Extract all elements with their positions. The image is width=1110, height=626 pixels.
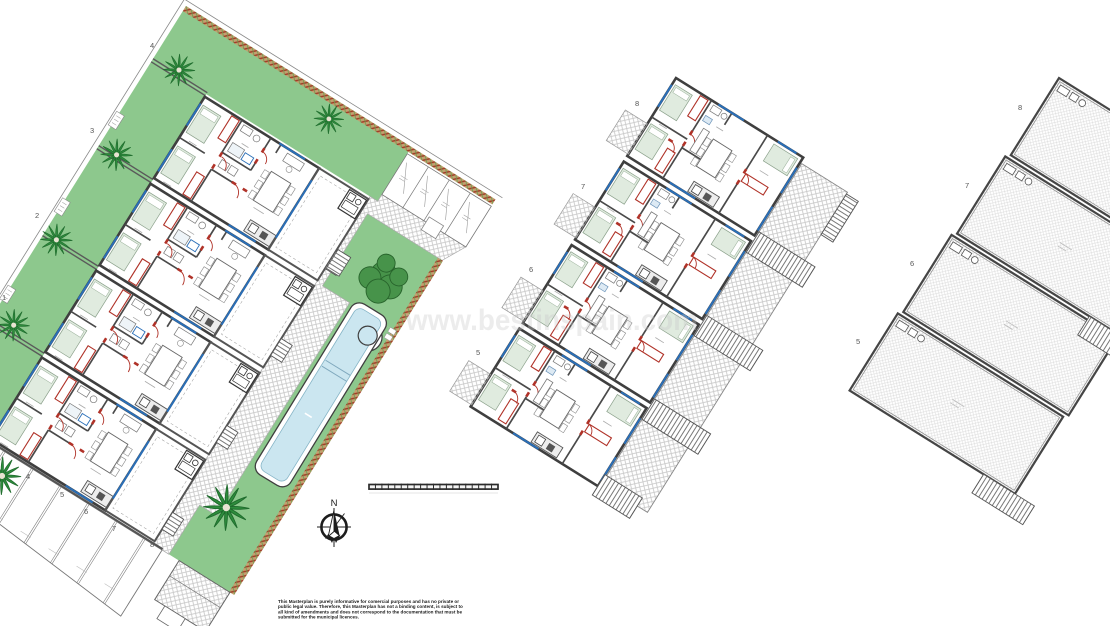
svg-text:5: 5 <box>60 490 64 499</box>
svg-text:4: 4 <box>26 472 30 481</box>
svg-text:4: 4 <box>150 41 154 50</box>
svg-text:7: 7 <box>112 524 116 533</box>
svg-text:7: 7 <box>581 182 585 191</box>
svg-text:N: N <box>331 498 338 509</box>
svg-text:7: 7 <box>965 181 969 190</box>
svg-text:submitted for the municipal li: submitted for the municipal licences. <box>278 615 359 620</box>
svg-text:2: 2 <box>35 211 39 220</box>
svg-text:1: 1 <box>2 293 6 302</box>
svg-text:6: 6 <box>529 265 533 274</box>
svg-text:5: 5 <box>856 337 860 346</box>
svg-text:5: 5 <box>476 348 480 357</box>
svg-text:3: 3 <box>90 126 94 135</box>
svg-text:8: 8 <box>635 99 639 108</box>
svg-text:6: 6 <box>910 259 914 268</box>
svg-text:www.bestinspain.com: www.bestinspain.com <box>405 304 698 337</box>
svg-text:8: 8 <box>1018 103 1022 112</box>
svg-text:6: 6 <box>84 507 88 516</box>
svg-text:8: 8 <box>150 540 154 549</box>
